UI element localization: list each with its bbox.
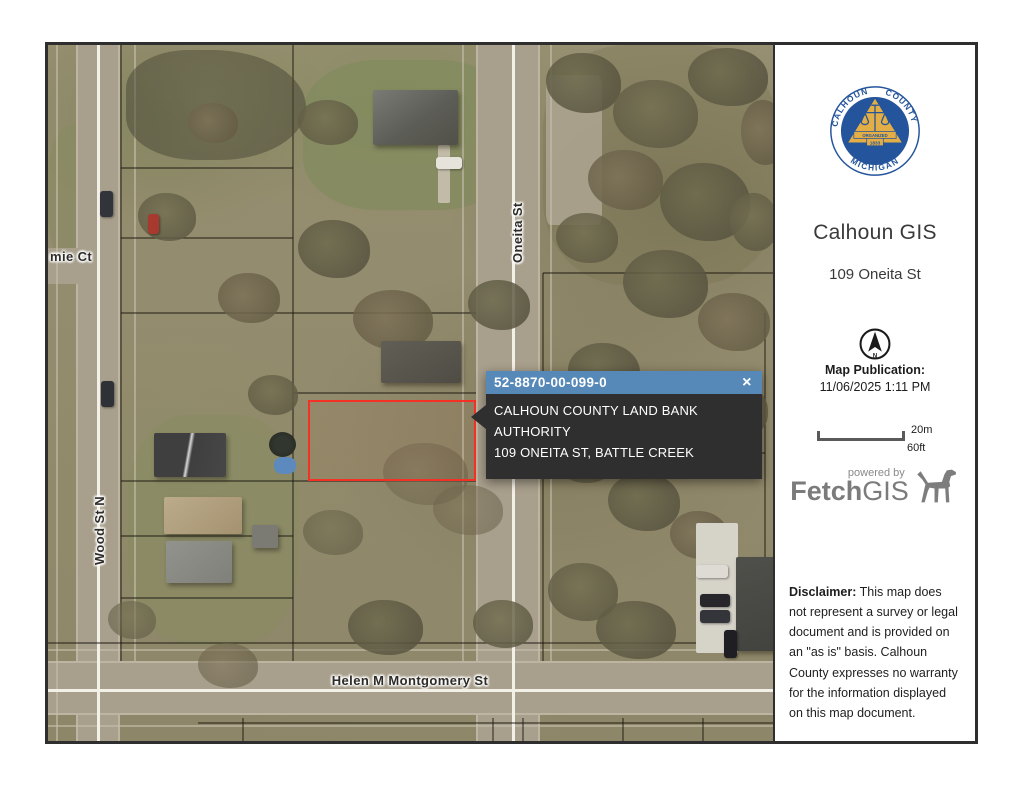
map-subject-address: 109 Oneita St	[775, 266, 975, 283]
popup-owner: CALHOUN COUNTY LAND BANK AUTHORITY	[494, 401, 754, 443]
brand-fetch: Fetch	[790, 476, 862, 506]
parcel-info-popup: 52-8870-00-099-0 × CALHOUN COUNTY LAND B…	[486, 371, 762, 479]
tree	[556, 213, 618, 263]
disclaimer-body: This map does not represent a survey or …	[789, 585, 958, 721]
publication-label: Map Publication:	[775, 363, 975, 377]
house	[736, 557, 773, 651]
car	[724, 630, 737, 658]
car	[700, 594, 730, 607]
pool-tarp	[274, 457, 296, 474]
car	[436, 157, 462, 169]
seal-year-text: 1833	[870, 140, 881, 146]
house	[164, 497, 242, 534]
seal-banner-text: ORGANIZED	[862, 133, 887, 138]
driveway	[438, 145, 450, 203]
house	[154, 433, 226, 477]
popup-header: 52-8870-00-099-0 ×	[486, 371, 762, 394]
tree	[473, 600, 533, 648]
tree	[248, 375, 298, 415]
tree	[108, 601, 156, 639]
app-title: Calhoun GIS	[775, 221, 975, 245]
tree	[348, 600, 423, 655]
info-sidebar: CALHOUN COUNTY MICHIGAN ORGANIZED 1833 C…	[773, 45, 975, 741]
house	[381, 341, 461, 383]
street-label-montgomery: Helen M Montgomery St	[260, 673, 560, 688]
close-icon[interactable]: ×	[738, 371, 756, 394]
house	[373, 90, 458, 145]
scale-line	[817, 438, 905, 441]
north-label: N	[873, 354, 877, 360]
tree	[698, 293, 770, 351]
sidewalk	[56, 45, 58, 741]
road-montgomery-st	[48, 661, 773, 715]
pool	[269, 432, 296, 457]
calhoun-county-seal-icon: CALHOUN COUNTY MICHIGAN ORGANIZED 1833	[829, 85, 921, 177]
sidewalk	[550, 45, 552, 661]
tree	[588, 150, 663, 210]
car	[696, 565, 728, 578]
car	[148, 214, 159, 234]
popup-arrow	[471, 405, 486, 429]
street-label-oneita: Oneita St	[510, 202, 525, 263]
disclaimer-label: Disclaimer:	[789, 585, 856, 599]
fetchgis-wordmark: FetchGIS	[790, 477, 909, 507]
dog-icon	[914, 465, 960, 507]
selected-parcel-outline[interactable]	[308, 400, 476, 481]
street-label-wood: Wood St N	[92, 496, 107, 565]
popup-body: CALHOUN COUNTY LAND BANK AUTHORITY 109 O…	[486, 394, 762, 479]
street-label-court: mie Ct	[50, 249, 92, 264]
tree	[303, 510, 363, 555]
brand-gis: GIS	[862, 476, 909, 506]
car	[101, 381, 114, 407]
north-arrow-icon: N	[858, 327, 892, 361]
publication-datetime: 11/06/2025 1:11 PM	[775, 380, 975, 394]
scale-tick-left	[817, 431, 820, 441]
tree	[546, 53, 621, 113]
popup-parcel-id: 52-8870-00-099-0	[494, 375, 607, 390]
road-centerline	[48, 689, 773, 692]
tree	[198, 643, 258, 688]
garage	[252, 525, 278, 548]
scale-tick-right	[902, 431, 905, 441]
tree	[298, 100, 358, 145]
document-frame: mie Ct Wood St N Oneita St Helen M Montg…	[45, 42, 978, 744]
sidewalk	[48, 725, 773, 727]
scale-bar: 20m 60ft	[817, 425, 967, 457]
car	[700, 610, 730, 623]
tree	[138, 193, 196, 241]
tree	[298, 220, 370, 278]
tree	[468, 280, 530, 330]
popup-address: 109 ONEITA ST, BATTLE CREEK	[494, 443, 754, 464]
tree	[188, 103, 238, 143]
house	[166, 541, 232, 583]
scale-imperial-label: 60ft	[907, 442, 925, 454]
road-centerline	[97, 45, 100, 741]
sidewalk	[462, 45, 464, 661]
fetchgis-brand: powered by FetchGIS	[775, 465, 975, 507]
tree	[218, 273, 280, 323]
scale-metric-label: 20m	[911, 424, 932, 436]
disclaimer-text: Disclaimer: This map does not represent …	[789, 582, 961, 724]
tree	[433, 485, 503, 535]
car	[100, 191, 113, 217]
map-canvas[interactable]: mie Ct Wood St N Oneita St Helen M Montg…	[48, 45, 773, 741]
tree	[608, 473, 680, 531]
